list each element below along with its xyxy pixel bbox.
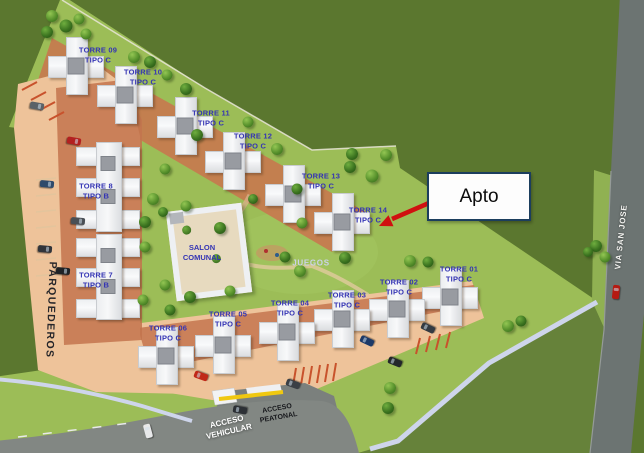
apto-annotation-box: Apto [427, 172, 531, 221]
site-plan-map: TORRE 09TIPO CTORRE 10TIPO CTORRE 11TIPO… [0, 0, 644, 453]
apto-arrow [0, 0, 644, 453]
apto-annotation-label: Apto [459, 186, 498, 208]
